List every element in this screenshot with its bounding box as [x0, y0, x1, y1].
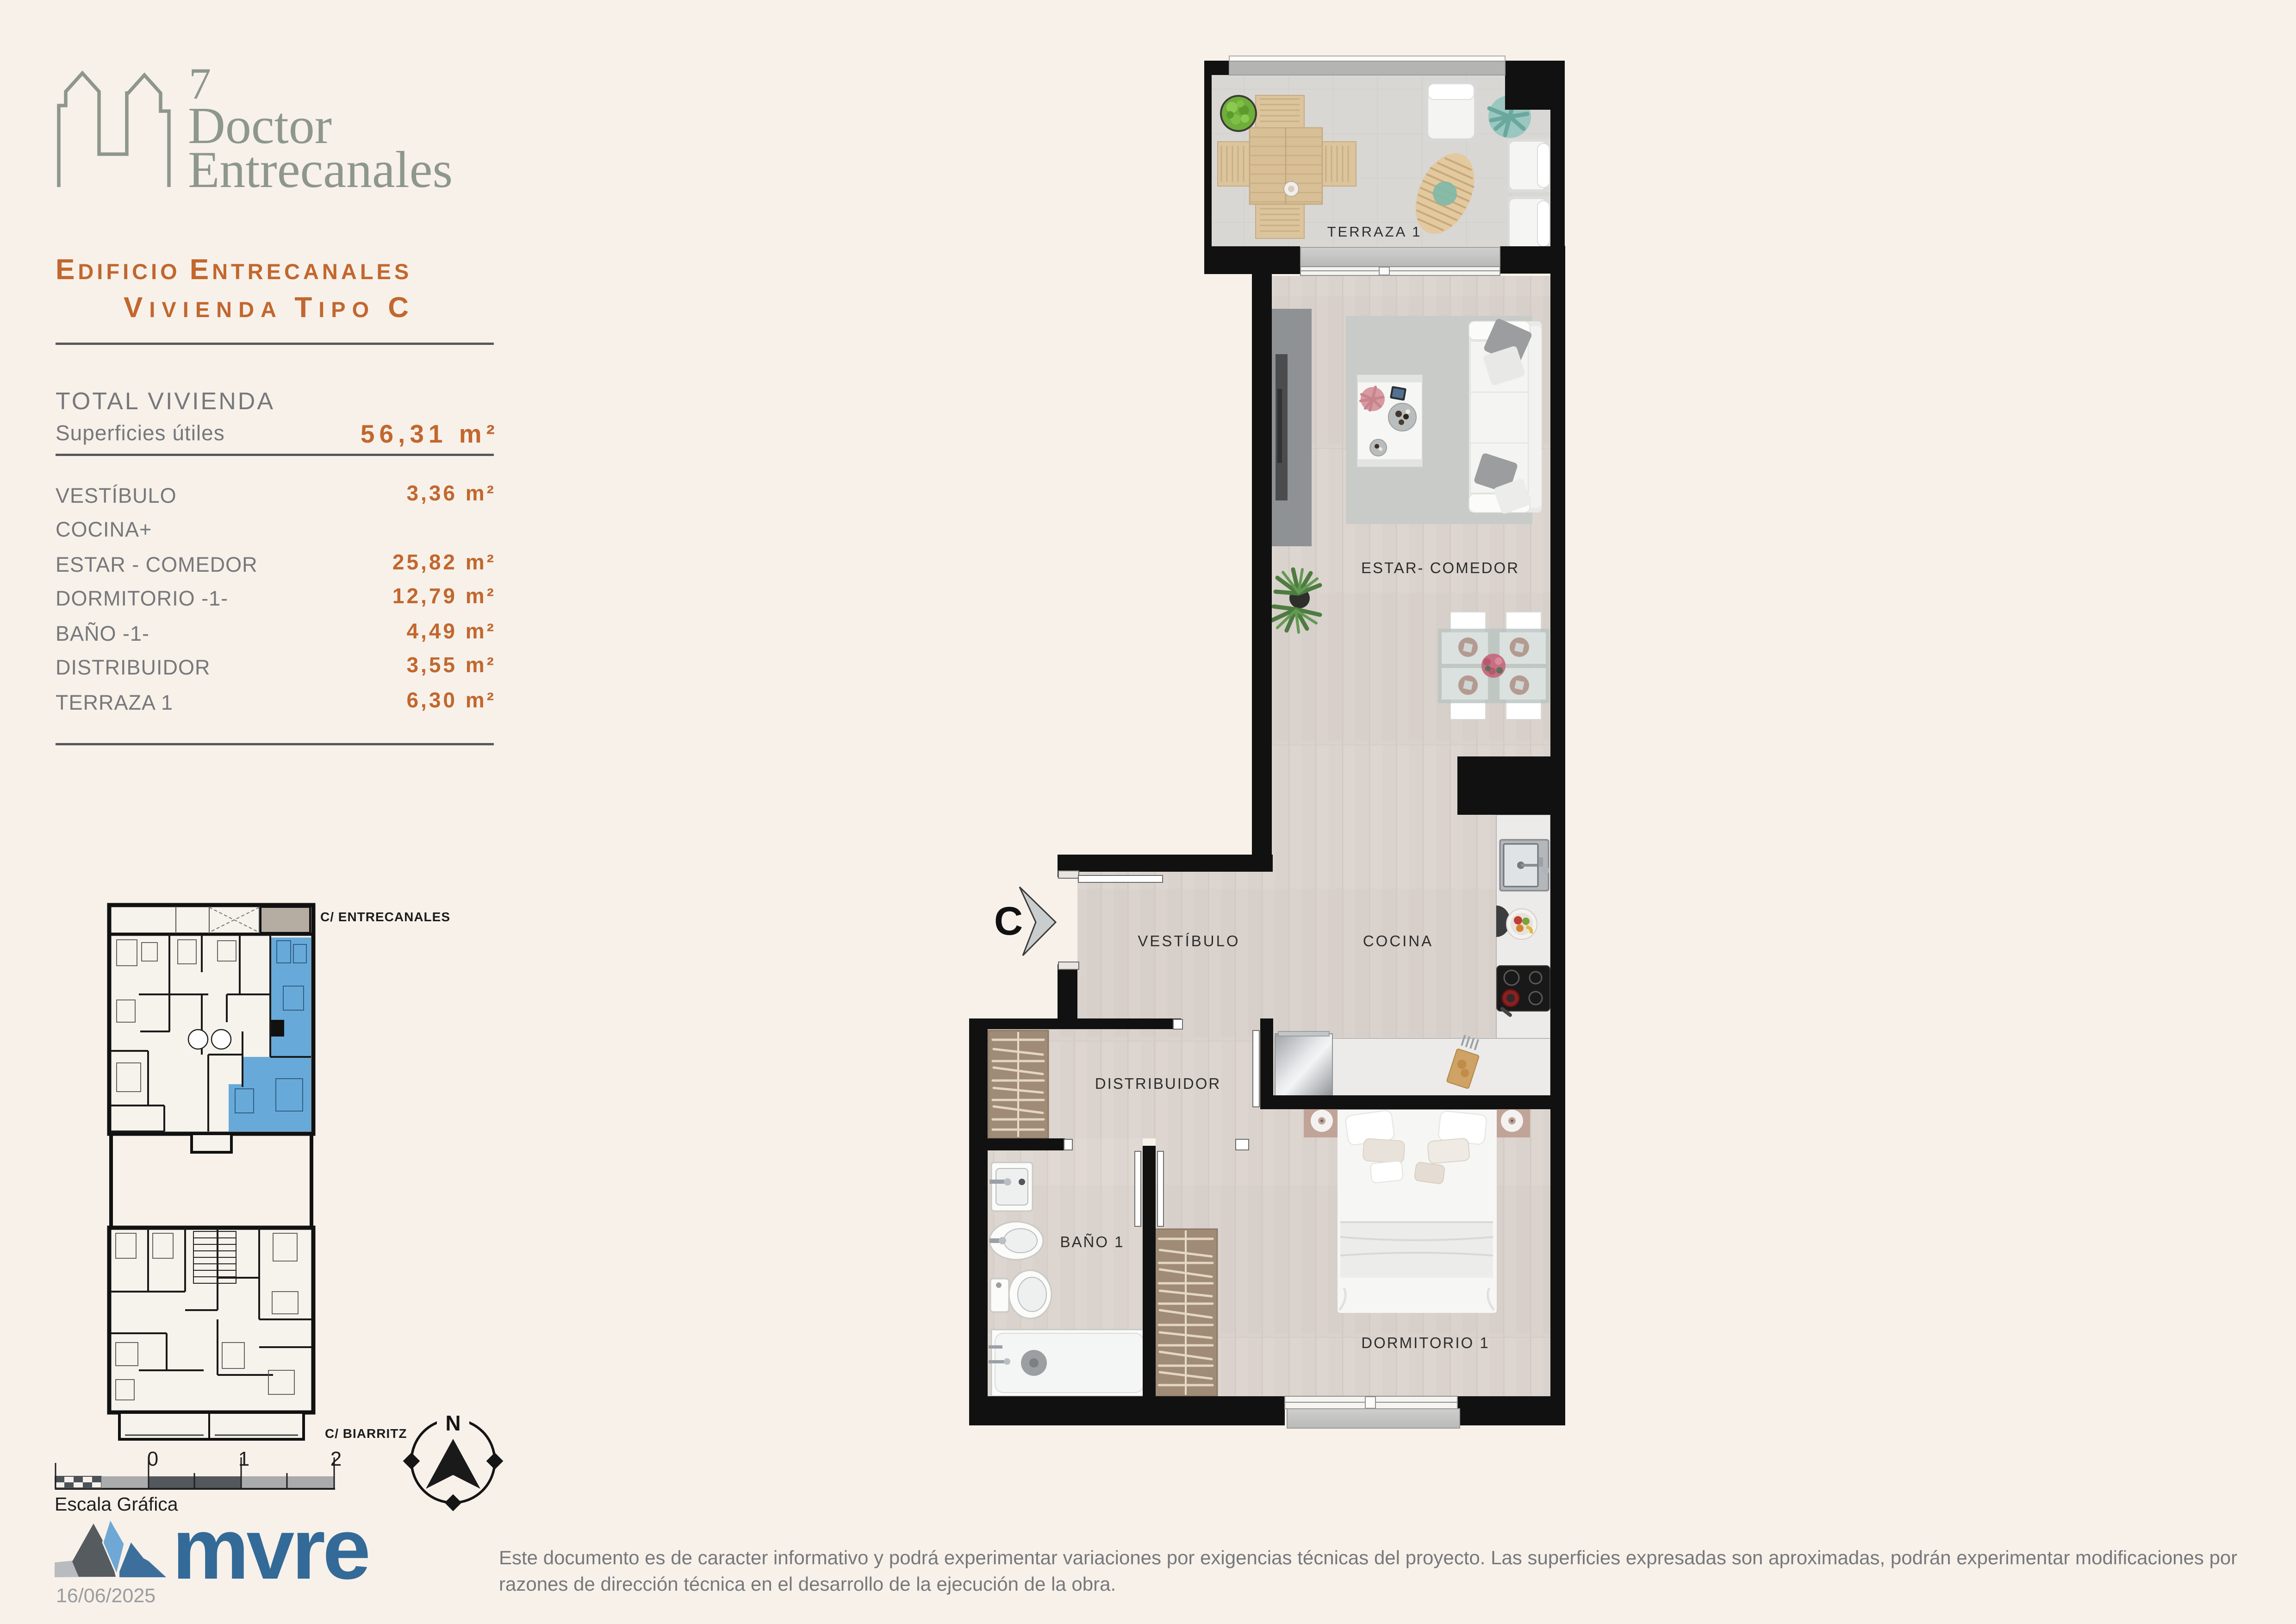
svg-text:VESTÍBULO: VESTÍBULO — [1138, 932, 1240, 949]
svg-text:C: C — [994, 899, 1023, 943]
svg-text:N: N — [445, 1411, 460, 1435]
svg-text:DISTRIBUIDOR: DISTRIBUIDOR — [1095, 1075, 1221, 1092]
svg-text:TERRAZA 1: TERRAZA 1 — [1327, 224, 1422, 240]
svg-text:C/ ENTRECANALES: C/ ENTRECANALES — [320, 910, 450, 924]
svg-text:2: 2 — [330, 1448, 342, 1470]
svg-text:BAÑO 1: BAÑO 1 — [1060, 1233, 1124, 1250]
svg-text:C/ BIARRITZ: C/ BIARRITZ — [325, 1426, 407, 1441]
svg-text:ESTAR- COMEDOR: ESTAR- COMEDOR — [1361, 559, 1519, 576]
svg-text:1: 1 — [238, 1448, 249, 1470]
svg-text:COCINA: COCINA — [1363, 932, 1433, 949]
svg-text:mvre: mvre — [172, 1514, 368, 1583]
svg-text:DORMITORIO 1: DORMITORIO 1 — [1361, 1334, 1489, 1351]
